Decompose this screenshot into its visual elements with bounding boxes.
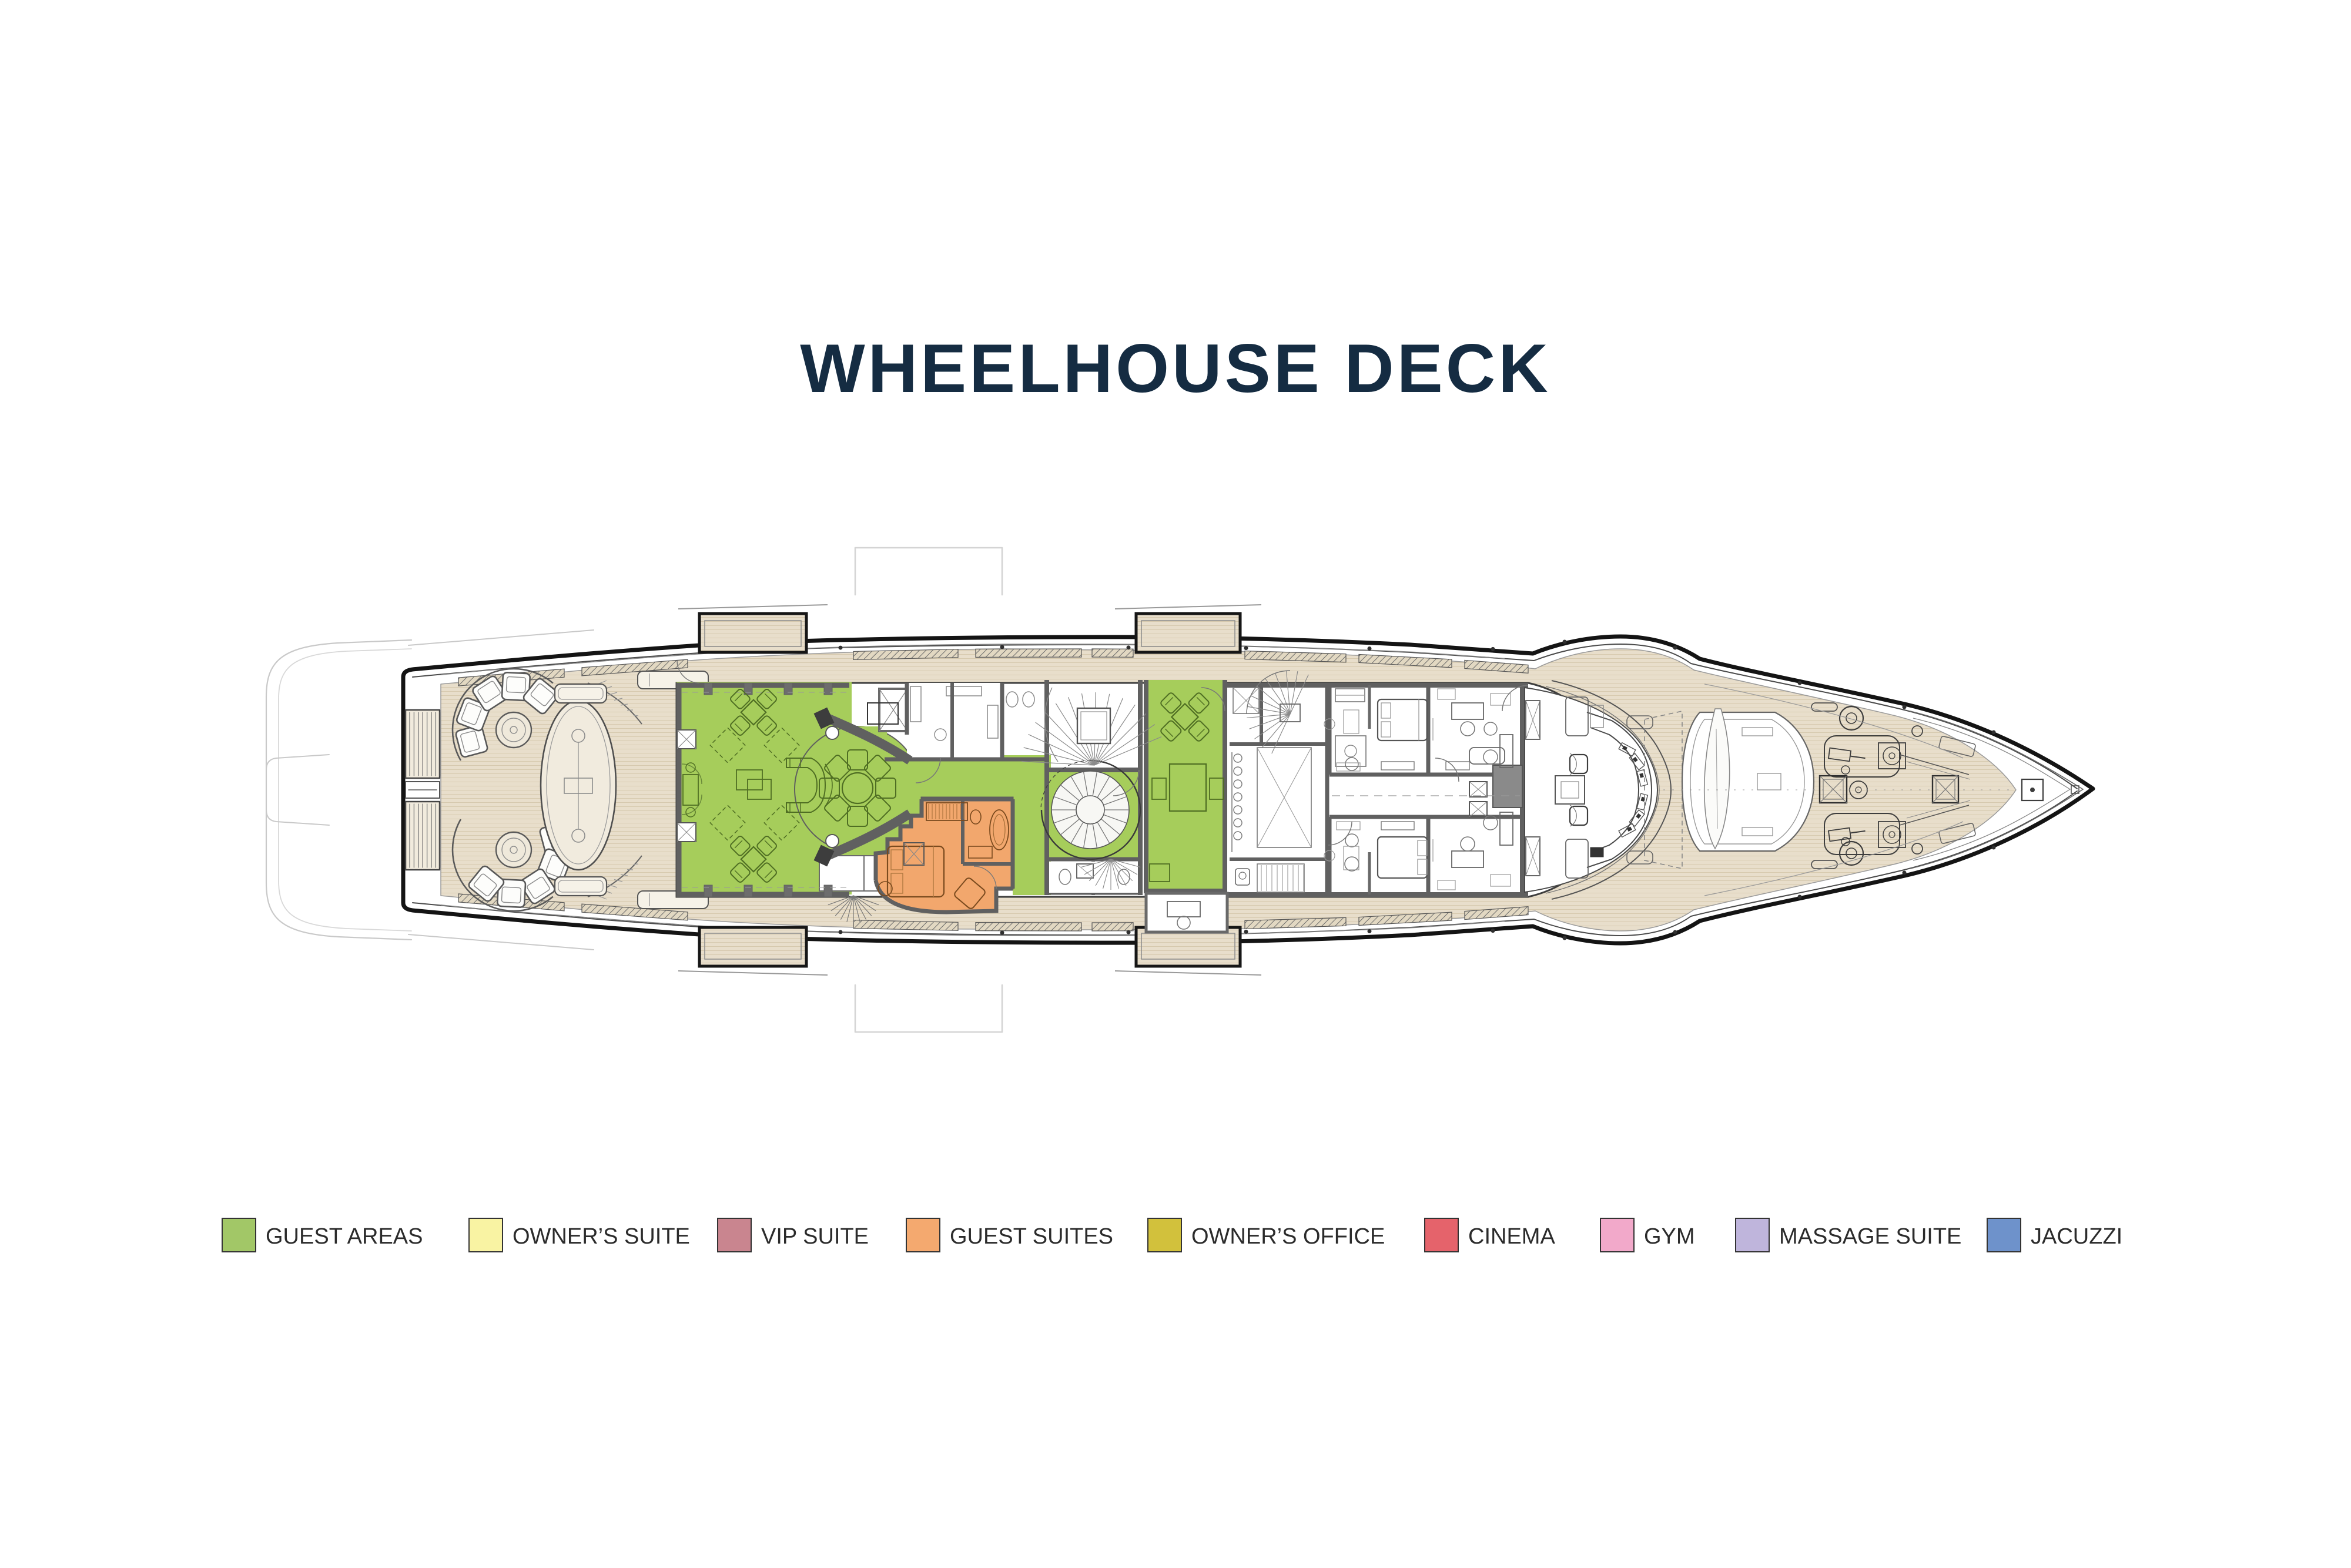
- svg-text:WHEELHOUSE DECK: WHEELHOUSE DECK: [800, 330, 1551, 407]
- svg-text:OWNER’S OFFICE: OWNER’S OFFICE: [1191, 1224, 1385, 1249]
- svg-text:JACUZZI: JACUZZI: [2031, 1224, 2122, 1249]
- svg-text:GYM: GYM: [1644, 1224, 1695, 1249]
- svg-text:OWNER’S SUITE: OWNER’S SUITE: [513, 1224, 690, 1249]
- svg-text:MASSAGE SUITE: MASSAGE SUITE: [1779, 1224, 1961, 1249]
- svg-text:VIP SUITE: VIP SUITE: [761, 1224, 869, 1249]
- svg-text:GUEST AREAS: GUEST AREAS: [266, 1224, 423, 1249]
- svg-text:CINEMA: CINEMA: [1468, 1224, 1555, 1249]
- svg-text:GUEST SUITES: GUEST SUITES: [950, 1224, 1113, 1249]
